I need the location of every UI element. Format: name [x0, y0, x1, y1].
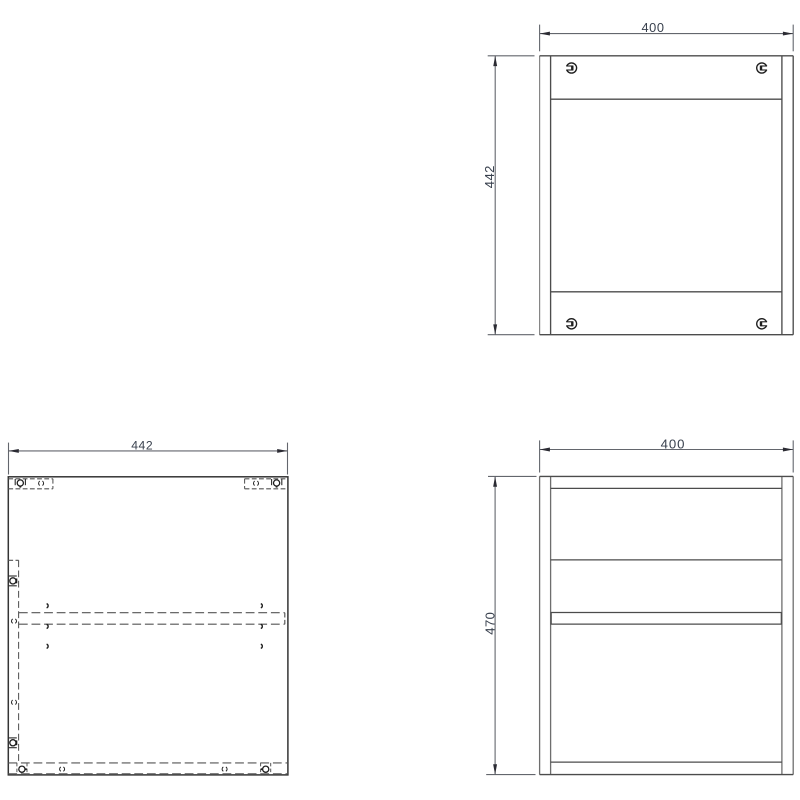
svg-text:442: 442 — [131, 438, 153, 452]
svg-text:400: 400 — [641, 20, 664, 35]
svg-text:470: 470 — [482, 612, 497, 635]
svg-text:442: 442 — [482, 165, 497, 188]
svg-text:400: 400 — [661, 437, 686, 452]
